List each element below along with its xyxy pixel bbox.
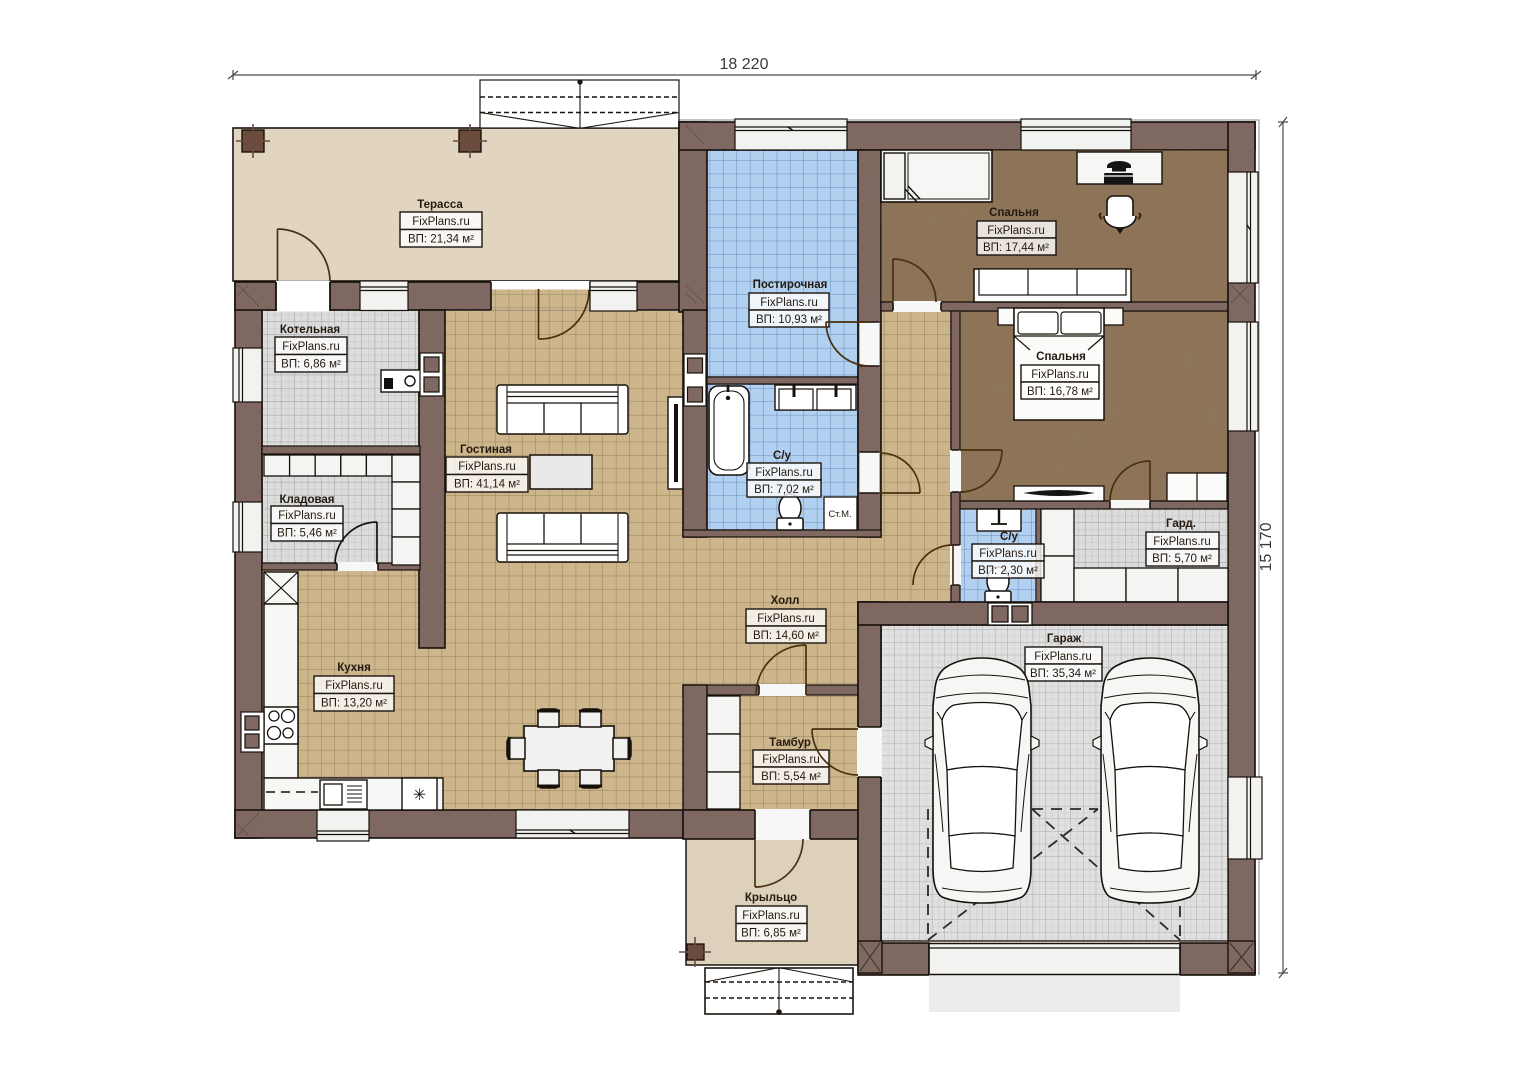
svg-text:FixPlans.ru: FixPlans.ru (987, 225, 1045, 237)
svg-text:FixPlans.ru: FixPlans.ru (412, 216, 470, 228)
svg-text:ВП: 5,46 м²: ВП: 5,46 м² (277, 528, 337, 540)
svg-text:FixPlans.ru: FixPlans.ru (755, 467, 813, 479)
svg-text:FixPlans.ru: FixPlans.ru (979, 548, 1037, 560)
svg-text:Гараж: Гараж (1047, 633, 1082, 645)
svg-text:Котельная: Котельная (280, 324, 340, 336)
svg-text:FixPlans.ru: FixPlans.ru (1034, 651, 1092, 663)
svg-text:FixPlans.ru: FixPlans.ru (282, 341, 340, 353)
svg-text:15 170: 15 170 (1258, 522, 1275, 571)
svg-text:Терасса: Терасса (417, 199, 463, 211)
svg-text:18 220: 18 220 (720, 56, 769, 73)
svg-text:ВП: 13,20 м²: ВП: 13,20 м² (321, 698, 387, 710)
svg-text:FixPlans.ru: FixPlans.ru (1153, 536, 1211, 548)
svg-text:ВП: 17,44 м²: ВП: 17,44 м² (983, 242, 1049, 254)
svg-text:ВП: 5,70 м²: ВП: 5,70 м² (1152, 553, 1212, 565)
svg-text:Спальня: Спальня (1036, 351, 1086, 363)
svg-text:ВП: 10,93 м²: ВП: 10,93 м² (756, 314, 822, 326)
svg-text:FixPlans.ru: FixPlans.ru (742, 910, 800, 922)
svg-text:Постирочная: Постирочная (753, 279, 828, 291)
svg-text:FixPlans.ru: FixPlans.ru (762, 754, 820, 766)
svg-text:FixPlans.ru: FixPlans.ru (757, 613, 815, 625)
svg-text:Гостиная: Гостиная (460, 444, 512, 456)
svg-text:Крыльцо: Крыльцо (745, 892, 797, 904)
svg-text:Тамбур: Тамбур (769, 737, 811, 749)
svg-text:FixPlans.ru: FixPlans.ru (760, 297, 818, 309)
svg-text:ВП: 6,85 м²: ВП: 6,85 м² (741, 928, 801, 940)
svg-text:С/у: С/у (773, 450, 792, 462)
svg-text:Гард.: Гард. (1166, 518, 1196, 530)
svg-text:ВП: 6,86 м²: ВП: 6,86 м² (281, 359, 341, 371)
svg-text:✳: ✳ (413, 787, 426, 804)
svg-text:ВП: 35,34 м²: ВП: 35,34 м² (1030, 668, 1096, 680)
svg-text:ВП: 7,02 м²: ВП: 7,02 м² (754, 484, 814, 496)
svg-text:FixPlans.ru: FixPlans.ru (1031, 369, 1089, 381)
svg-text:Спальня: Спальня (989, 207, 1039, 219)
svg-text:FixPlans.ru: FixPlans.ru (325, 680, 383, 692)
svg-text:Холл: Холл (771, 595, 800, 607)
svg-text:ВП: 16,78 м²: ВП: 16,78 м² (1027, 386, 1093, 398)
svg-text:ВП: 5,54 м²: ВП: 5,54 м² (761, 771, 821, 783)
svg-text:FixPlans.ru: FixPlans.ru (458, 461, 516, 473)
svg-text:ВП: 21,34 м²: ВП: 21,34 м² (408, 234, 474, 246)
svg-text:ВП: 14,60 м²: ВП: 14,60 м² (753, 630, 819, 642)
svg-text:FixPlans.ru: FixPlans.ru (278, 510, 336, 522)
svg-text:ВП: 41,14 м²: ВП: 41,14 м² (454, 479, 520, 491)
svg-text:С/у: С/у (1000, 531, 1019, 543)
svg-text:ВП: 2,30 м²: ВП: 2,30 м² (978, 565, 1038, 577)
svg-text:Кухня: Кухня (337, 662, 371, 674)
svg-text:Ст.М.: Ст.М. (828, 509, 851, 520)
svg-text:Кладовая: Кладовая (279, 494, 334, 506)
